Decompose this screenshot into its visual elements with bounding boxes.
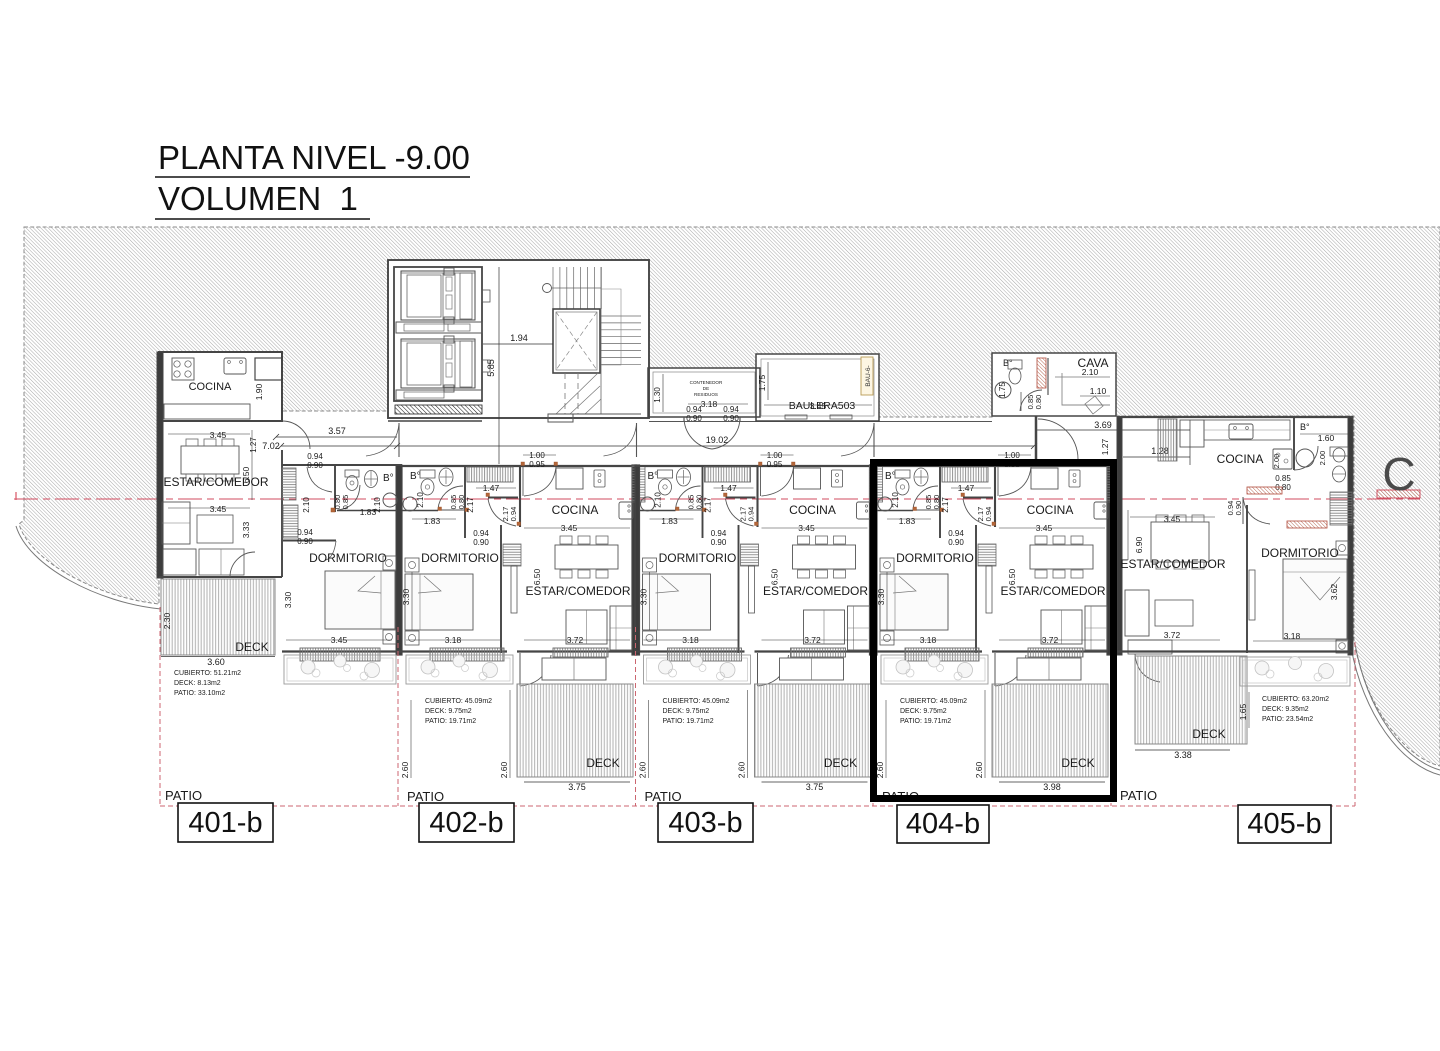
svg-text:PATIO: 33.10m2: PATIO: 33.10m2 xyxy=(174,690,225,697)
svg-text:CUBIERTO: 63.20m2: CUBIERTO: 63.20m2 xyxy=(1262,696,1329,703)
svg-text:COCINA: COCINA xyxy=(1027,503,1074,517)
svg-text:2.60: 2.60 xyxy=(737,761,747,778)
svg-text:2.00: 2.00 xyxy=(1318,451,1327,466)
svg-text:2.60: 2.60 xyxy=(400,761,410,778)
svg-text:2.60: 2.60 xyxy=(638,761,648,778)
svg-text:0.94: 0.94 xyxy=(711,529,727,538)
svg-text:RESIDUOS: RESIDUOS xyxy=(694,392,718,397)
svg-text:1.75: 1.75 xyxy=(757,374,767,391)
svg-text:0.94: 0.94 xyxy=(473,529,489,538)
svg-text:3.98: 3.98 xyxy=(1043,782,1061,792)
svg-text:PATIO: 19.71m2: PATIO: 19.71m2 xyxy=(425,718,476,725)
svg-text:2.10: 2.10 xyxy=(416,492,425,508)
svg-text:1.30: 1.30 xyxy=(653,387,662,403)
svg-text:DECK: 9.35m2: DECK: 9.35m2 xyxy=(1262,706,1309,713)
svg-text:PATIO: PATIO xyxy=(1120,788,1157,803)
svg-text:3.45: 3.45 xyxy=(210,504,227,514)
svg-text:B°: B° xyxy=(648,471,659,482)
svg-text:PATIO: 19.71m2: PATIO: 19.71m2 xyxy=(900,718,951,725)
svg-text:COCINA: COCINA xyxy=(189,381,232,393)
svg-text:0.85: 0.85 xyxy=(341,495,350,510)
svg-text:ESTAR/COMEDOR: ESTAR/COMEDOR xyxy=(1000,584,1105,598)
svg-text:0.94: 0.94 xyxy=(509,507,518,522)
svg-text:PATIO: PATIO xyxy=(645,789,682,804)
svg-text:403-b: 403-b xyxy=(668,807,742,839)
svg-text:3.69: 3.69 xyxy=(1094,420,1112,430)
svg-text:BAULERA503: BAULERA503 xyxy=(789,400,856,412)
svg-text:0.94: 0.94 xyxy=(307,452,323,461)
svg-text:6.50: 6.50 xyxy=(532,568,542,585)
svg-text:0.94: 0.94 xyxy=(948,529,964,538)
svg-text:CUBIERTO: 45.09m2: CUBIERTO: 45.09m2 xyxy=(425,698,492,705)
svg-text:1.83: 1.83 xyxy=(899,516,916,526)
svg-text:B°: B° xyxy=(885,471,896,482)
svg-text:CUBIERTO: 45.09m2: CUBIERTO: 45.09m2 xyxy=(900,698,967,705)
svg-text:1.00: 1.00 xyxy=(1004,451,1020,460)
svg-text:3.45: 3.45 xyxy=(210,430,227,440)
svg-text:7.02: 7.02 xyxy=(262,441,280,451)
svg-text:3.30: 3.30 xyxy=(639,588,649,605)
svg-text:1.94: 1.94 xyxy=(510,333,528,343)
svg-text:1.83: 1.83 xyxy=(424,516,441,526)
svg-text:5.85: 5.85 xyxy=(486,359,496,377)
svg-text:401-b: 401-b xyxy=(188,807,262,839)
svg-text:3.30: 3.30 xyxy=(876,588,886,605)
svg-text:6.50: 6.50 xyxy=(1007,568,1017,585)
svg-text:ESTAR/COMEDOR: ESTAR/COMEDOR xyxy=(525,584,630,598)
svg-text:0.95: 0.95 xyxy=(767,460,783,469)
svg-text:DORMITORIO: DORMITORIO xyxy=(659,551,737,565)
svg-text:3.18: 3.18 xyxy=(1284,631,1301,641)
svg-text:3.72: 3.72 xyxy=(1164,630,1181,640)
svg-text:VOLUMEN 1: VOLUMEN 1 xyxy=(158,180,358,217)
svg-text:1.00: 1.00 xyxy=(767,451,783,460)
svg-text:0.80: 0.80 xyxy=(457,495,466,510)
svg-text:0.85: 0.85 xyxy=(1275,474,1291,483)
svg-text:DORMITORIO: DORMITORIO xyxy=(309,551,387,565)
svg-text:0.94: 0.94 xyxy=(984,507,993,522)
svg-text:COCINA: COCINA xyxy=(1217,452,1264,466)
svg-text:405-b: 405-b xyxy=(1247,808,1321,840)
svg-text:0.90: 0.90 xyxy=(473,538,489,547)
svg-text:COCINA: COCINA xyxy=(552,503,599,517)
svg-text:DECK: DECK xyxy=(1192,727,1225,741)
svg-text:6.50: 6.50 xyxy=(770,568,780,585)
svg-text:DORMITORIO: DORMITORIO xyxy=(421,551,499,565)
svg-text:BAU-6-: BAU-6- xyxy=(865,365,872,386)
svg-text:ESTAR/COMEDOR: ESTAR/COMEDOR xyxy=(163,475,268,489)
svg-text:COCINA: COCINA xyxy=(789,503,836,517)
svg-text:DECK: 9.75m2: DECK: 9.75m2 xyxy=(425,708,472,715)
svg-text:3.45: 3.45 xyxy=(1164,514,1181,524)
svg-text:DECK: 9.75m2: DECK: 9.75m2 xyxy=(900,708,947,715)
svg-text:3.45: 3.45 xyxy=(331,635,348,645)
svg-text:CUBIERTO: 51.21m2: CUBIERTO: 51.21m2 xyxy=(174,670,241,677)
svg-text:3.30: 3.30 xyxy=(283,591,293,608)
svg-text:DECK: DECK xyxy=(586,756,619,770)
svg-text:0.90: 0.90 xyxy=(307,461,323,470)
svg-text:0.94: 0.94 xyxy=(686,405,702,414)
svg-text:3.38: 3.38 xyxy=(1174,750,1192,760)
svg-text:2.10: 2.10 xyxy=(891,492,900,508)
svg-text:2.17: 2.17 xyxy=(466,497,475,513)
svg-text:0.90: 0.90 xyxy=(711,538,727,547)
svg-text:1.65: 1.65 xyxy=(1238,703,1248,720)
svg-text:B°: B° xyxy=(410,471,421,482)
svg-text:3.75: 3.75 xyxy=(568,782,586,792)
svg-text:0.80: 0.80 xyxy=(932,495,941,510)
svg-text:0.94: 0.94 xyxy=(723,405,739,414)
svg-text:C: C xyxy=(1382,448,1415,500)
svg-text:2.10: 2.10 xyxy=(1082,367,1099,377)
svg-text:ESTAR/COMEDOR: ESTAR/COMEDOR xyxy=(1120,557,1225,571)
svg-text:1.27: 1.27 xyxy=(1100,438,1110,455)
svg-text:DECK: 8.13m2: DECK: 8.13m2 xyxy=(174,680,221,687)
svg-text:2.60: 2.60 xyxy=(974,761,984,778)
svg-text:PLANTA NIVEL -9.00: PLANTA NIVEL -9.00 xyxy=(158,139,470,176)
svg-text:0.90: 0.90 xyxy=(1234,501,1243,516)
svg-text:DECK: 9.75m2: DECK: 9.75m2 xyxy=(663,708,710,715)
svg-text:3.33: 3.33 xyxy=(241,521,251,538)
svg-text:DORMITORIO: DORMITORIO xyxy=(896,551,974,565)
svg-text:2.10: 2.10 xyxy=(654,492,663,508)
svg-text:2.00: 2.00 xyxy=(1272,454,1281,469)
svg-text:CUBIERTO: 45.09m2: CUBIERTO: 45.09m2 xyxy=(663,698,730,705)
svg-text:1.00: 1.00 xyxy=(529,451,545,460)
svg-text:1.83: 1.83 xyxy=(661,516,678,526)
svg-text:1.75: 1.75 xyxy=(998,382,1007,398)
svg-text:DECK: DECK xyxy=(824,756,857,770)
svg-text:1.10: 1.10 xyxy=(1090,386,1107,396)
svg-text:PATIO: 19.71m2: PATIO: 19.71m2 xyxy=(663,718,714,725)
svg-text:DECK: DECK xyxy=(235,640,268,654)
svg-text:0.80: 0.80 xyxy=(695,495,704,510)
svg-text:19.02: 19.02 xyxy=(706,435,729,445)
svg-text:3.57: 3.57 xyxy=(328,426,346,436)
svg-text:3.75: 3.75 xyxy=(806,782,824,792)
svg-text:3.62: 3.62 xyxy=(1329,583,1339,600)
svg-text:DORMITORIO: DORMITORIO xyxy=(1261,546,1339,560)
svg-text:0.90: 0.90 xyxy=(297,537,313,546)
svg-text:PATIO: 23.54m2: PATIO: 23.54m2 xyxy=(1262,716,1313,723)
svg-text:0.80: 0.80 xyxy=(1034,395,1043,410)
svg-text:PATIO: PATIO xyxy=(165,788,202,803)
svg-text:0.90: 0.90 xyxy=(948,538,964,547)
svg-text:2.17: 2.17 xyxy=(941,497,950,513)
svg-text:1.27: 1.27 xyxy=(249,437,258,453)
svg-text:2.10: 2.10 xyxy=(302,497,311,513)
svg-text:2.17: 2.17 xyxy=(704,497,713,513)
svg-text:B°: B° xyxy=(1300,422,1310,432)
svg-text:PATIO: PATIO xyxy=(407,789,444,804)
svg-text:DE: DE xyxy=(703,386,709,391)
svg-text:2.60: 2.60 xyxy=(499,761,509,778)
svg-text:402-b: 402-b xyxy=(429,807,503,839)
svg-text:2.30: 2.30 xyxy=(162,612,172,629)
svg-text:0.94: 0.94 xyxy=(297,528,313,537)
svg-text:0.95: 0.95 xyxy=(529,460,545,469)
svg-text:1.90: 1.90 xyxy=(254,383,264,400)
svg-text:1.60: 1.60 xyxy=(1318,433,1335,443)
svg-text:DECK: DECK xyxy=(1061,756,1094,770)
svg-text:B°: B° xyxy=(383,473,394,484)
svg-text:404-b: 404-b xyxy=(906,808,980,840)
svg-text:CONTENEDOR: CONTENEDOR xyxy=(690,380,723,385)
svg-text:6.90: 6.90 xyxy=(1134,536,1144,553)
svg-text:ESTAR/COMEDOR: ESTAR/COMEDOR xyxy=(763,584,868,598)
svg-text:3.60: 3.60 xyxy=(207,657,225,667)
svg-text:0.94: 0.94 xyxy=(747,507,756,522)
svg-text:2.10: 2.10 xyxy=(373,497,382,513)
